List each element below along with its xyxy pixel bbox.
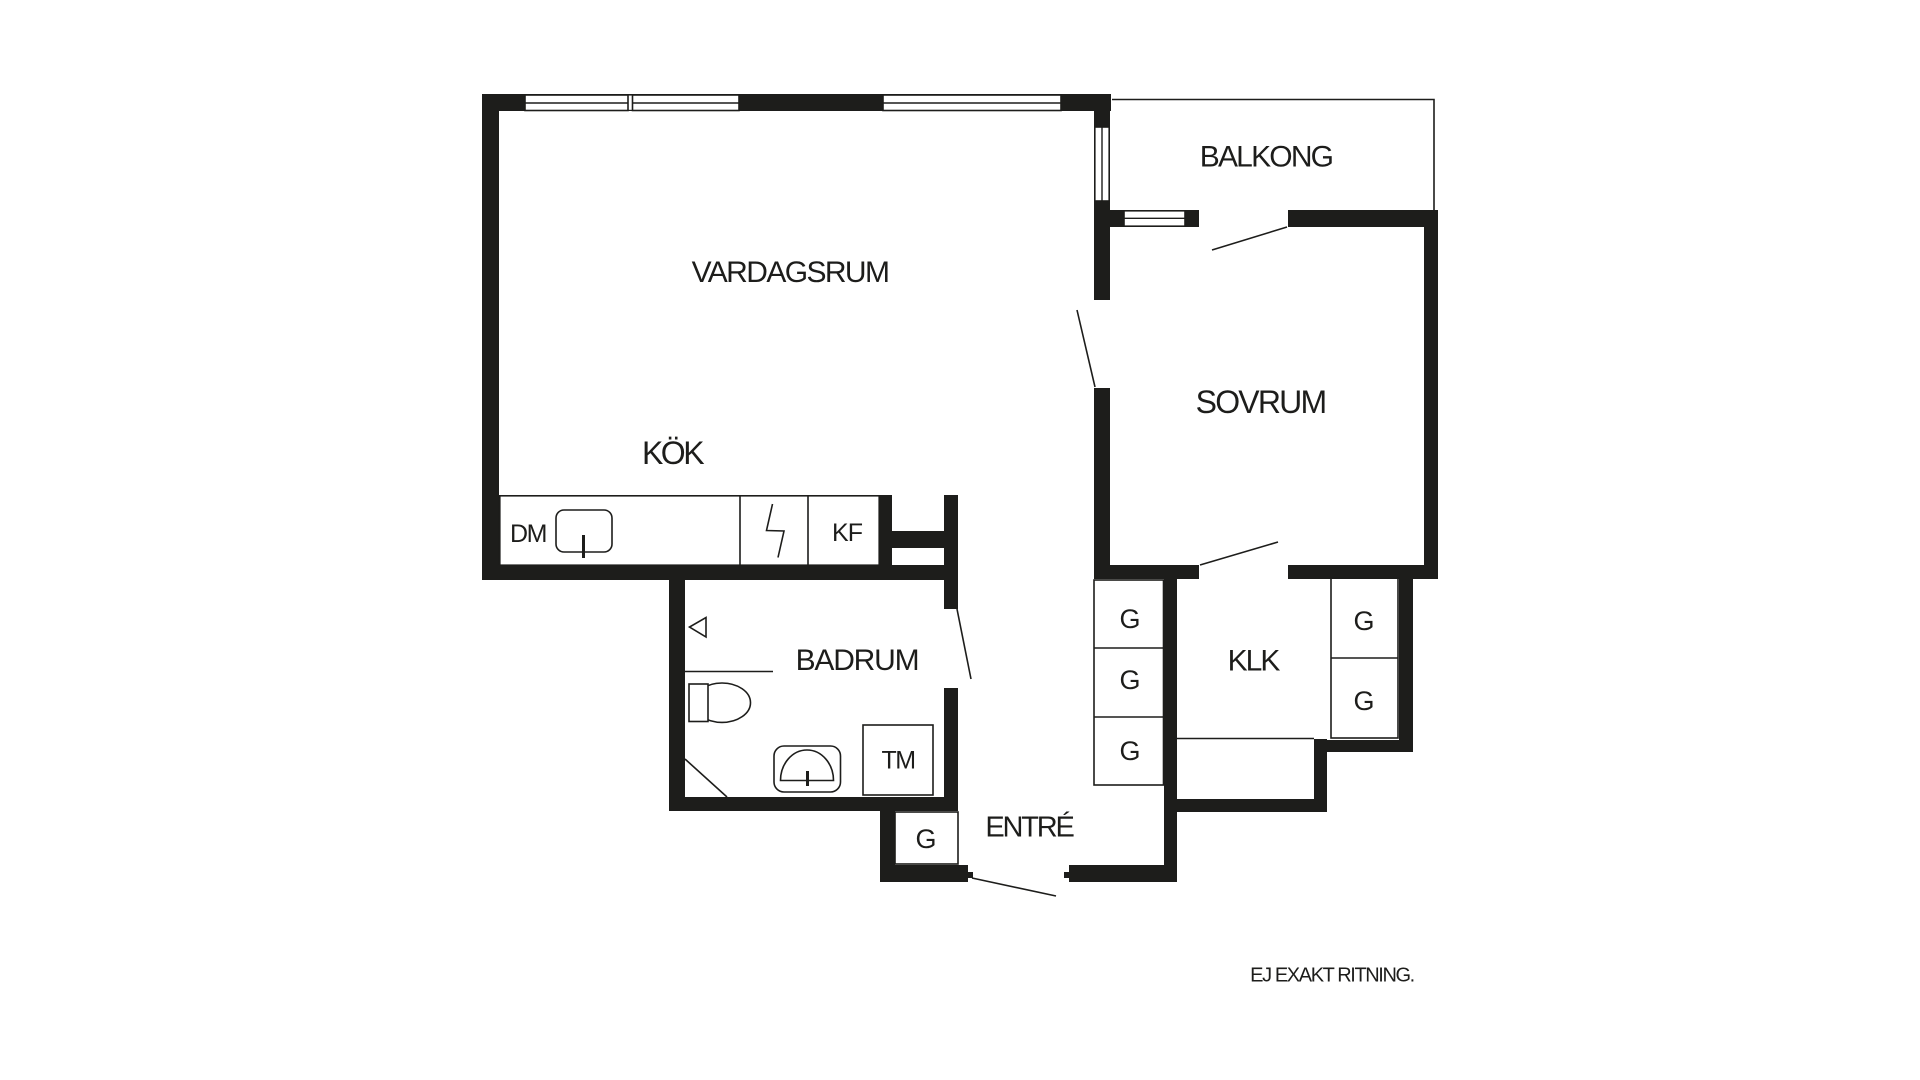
svg-text:G: G: [1119, 736, 1140, 766]
svg-text:TM: TM: [881, 747, 914, 775]
svg-text:BALKONG: BALKONG: [1200, 141, 1333, 174]
svg-text:ENTRÉ: ENTRÉ: [985, 811, 1074, 844]
svg-text:EJ EXAKT RITNING.: EJ EXAKT RITNING.: [1250, 965, 1414, 987]
svg-text:BADRUM: BADRUM: [796, 644, 919, 677]
svg-text:VARDAGSRUM: VARDAGSRUM: [692, 256, 889, 289]
svg-text:G: G: [1119, 665, 1140, 695]
svg-text:G: G: [1353, 686, 1374, 716]
svg-text:KÖK: KÖK: [642, 435, 704, 471]
svg-text:G: G: [1353, 606, 1374, 636]
svg-text:KLK: KLK: [1228, 645, 1281, 678]
svg-text:G: G: [1119, 604, 1140, 634]
svg-text:KF: KF: [832, 519, 863, 547]
svg-text:G: G: [915, 824, 936, 854]
svg-text:SOVRUM: SOVRUM: [1196, 384, 1326, 420]
svg-text:DM: DM: [510, 520, 546, 548]
